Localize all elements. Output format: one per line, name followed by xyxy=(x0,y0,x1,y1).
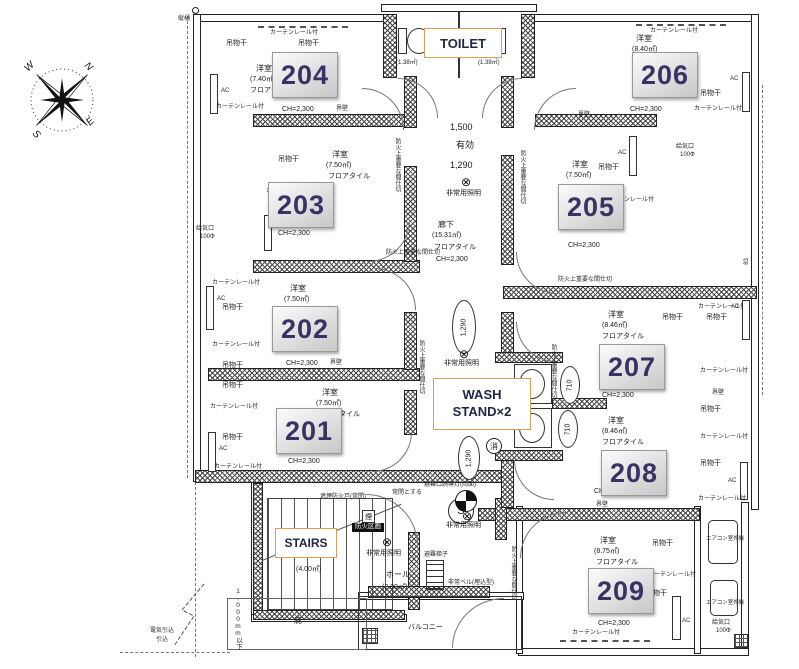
ac-label: AC xyxy=(731,304,739,311)
room-208-type: 洋室 xyxy=(608,416,624,425)
toilet-tank-left xyxy=(398,28,407,54)
curtain-rail-label: カーテンレール付 xyxy=(216,104,264,111)
vertical-drain-icon xyxy=(192,7,199,14)
room-202-ch: CH=2,300 xyxy=(286,360,318,368)
corridor-ch: CH=2,300 xyxy=(436,256,468,264)
ac-label: AC xyxy=(618,150,626,157)
emergency-light-label: 非常用照明 xyxy=(444,360,479,368)
emergency-light-label: 非常用照明 xyxy=(446,522,481,530)
hanging-label: 吊物干 xyxy=(298,40,319,48)
dim-oval-710b: 710 xyxy=(558,410,578,448)
washstand-wall-stub xyxy=(552,398,607,409)
toilet-area-left: (1.38㎡) xyxy=(396,60,418,67)
party-wall xyxy=(253,260,420,273)
wall-209-right xyxy=(694,506,701,654)
wall-bottom-209 xyxy=(518,648,749,656)
hanging-label: 吊物干 xyxy=(700,90,721,98)
smoke-door-label: 遮煙防火戸(常閉) xyxy=(320,494,366,501)
room-203-finish: フロアタイル xyxy=(328,173,370,181)
room-205-ch: CH=2,300 xyxy=(568,242,600,250)
room-207-finish: フロアタイル xyxy=(602,333,644,341)
dim-1290: 1,290 xyxy=(450,160,473,170)
emergency-light-icon: ⊗ xyxy=(461,176,471,188)
kaihe-label: 界壁 xyxy=(578,112,590,119)
room-206-type: 洋室 xyxy=(636,34,652,43)
extinguisher-label: 消 xyxy=(490,441,498,452)
room-badge-205: 205 xyxy=(558,184,624,230)
wall-toilet-top xyxy=(381,4,537,12)
corridor-wall xyxy=(501,460,514,508)
fire-partition-label-v: 防火上重要な間仕切 xyxy=(519,150,525,250)
curtain-rail-label: カーテンレール付 xyxy=(212,342,260,349)
room-203-type: 洋室 xyxy=(332,150,348,159)
door-arc-toilet-left xyxy=(398,78,438,118)
room-badge-208: 208 xyxy=(601,450,667,496)
washstand-label-1: WASH xyxy=(463,387,502,404)
dim-83: 83 xyxy=(744,258,751,265)
escape-ladder-icon xyxy=(426,560,444,590)
room-201-type: 洋室 xyxy=(322,388,338,397)
ac-unit xyxy=(740,462,748,500)
supply-port-label: 給気口 xyxy=(676,144,694,151)
room-208-finish: フロアタイル xyxy=(602,439,644,447)
hanging-label: 吊物干 xyxy=(662,314,683,322)
fire-compartment-tag: 防火区画 xyxy=(352,523,384,532)
compass-e: E xyxy=(84,115,97,128)
hanging-label: 吊物干 xyxy=(598,164,619,172)
hanging-label: 吊物干 xyxy=(222,382,243,390)
lead-in-zigzag xyxy=(168,582,208,652)
dim-1000mm: 1,000mm以下 xyxy=(234,588,241,660)
wall-right-bay xyxy=(741,502,749,656)
washstand-label-2: STAND×2 xyxy=(453,404,512,421)
supply-port-label: 給気口 xyxy=(712,620,730,627)
toilet-label-box: TOILET xyxy=(424,28,502,58)
room-207-area: (8.46㎡) xyxy=(602,322,627,330)
curtain-rail-label: カーテンレール付 xyxy=(214,464,262,471)
hanging-label: 吊物干 xyxy=(222,304,243,312)
stairs-label: STAIRS xyxy=(284,536,327,550)
room-badge-204: 204 xyxy=(272,52,338,98)
lead-in-label: 引込 xyxy=(156,637,168,644)
door-arc-202 xyxy=(374,268,416,310)
hanging-label: 吊物干 xyxy=(226,40,247,48)
wall-top-right xyxy=(533,14,759,22)
dim-1290-v: 1,290 xyxy=(461,318,468,336)
room-badge-206: 206 xyxy=(632,52,698,98)
dim-1290-v: 1,290 xyxy=(466,449,473,467)
supply-dia-label: 100Φ xyxy=(716,628,731,635)
room-209-ch: CH=2,300 xyxy=(598,620,630,628)
hanging-label: 吊物干 xyxy=(706,314,727,322)
room-207-type: 洋室 xyxy=(608,310,624,319)
curtain-rail xyxy=(258,26,348,28)
fire-partition-label-v: 防火上重要な間仕切 xyxy=(418,340,424,430)
dim-oval-710a: 710 xyxy=(560,366,580,404)
room-206-ch: CH=2,300 xyxy=(630,106,662,114)
room-207-ch: CH=2,300 xyxy=(602,392,634,400)
curtain-rail-label: カーテンレール付 xyxy=(270,30,318,37)
curtain-rail-label: カーテンレール付 xyxy=(700,368,748,375)
ac-unit xyxy=(672,596,681,640)
outdoor-unit-2 xyxy=(710,580,738,616)
eave-line-right xyxy=(762,85,763,395)
door-arc-208 xyxy=(514,460,554,500)
fire-partition-label-v: 防火上重要な間仕切 xyxy=(394,138,400,238)
room-202-type: 洋室 xyxy=(290,284,306,293)
kaihe-label: 界壁 xyxy=(712,390,724,397)
room-202-area: (7.50㎡) xyxy=(284,296,309,304)
door-arc-toilet-right xyxy=(482,78,522,118)
room-badge-202: 202 xyxy=(272,306,338,352)
canopy-label: 庇 xyxy=(294,616,302,625)
outdoor-unit-label: エアコン室外機 xyxy=(706,600,744,606)
dim-oval-1290: 1,290 xyxy=(452,300,476,354)
hanging-label: 吊物干 xyxy=(652,540,673,548)
emergency-light-icon: ⊗ xyxy=(462,510,472,522)
floor-plan: N W S E xyxy=(0,0,799,669)
curtain-rail-label: カーテンレール付 xyxy=(698,496,746,503)
exit-light-label: 避難口誘導灯(両面) xyxy=(424,482,476,489)
corridor-wall xyxy=(501,312,514,354)
wall-top-left xyxy=(193,14,387,22)
curtain-rail-label: カーテンレール付 xyxy=(700,434,748,441)
ac-unit xyxy=(742,300,750,340)
room-208-area: (8.46㎡) xyxy=(602,428,627,436)
emergency-light-label: 非常用照明 xyxy=(446,190,481,198)
corridor-wall xyxy=(404,312,417,370)
property-line-bottom xyxy=(120,652,230,653)
room-badge-203: 203 xyxy=(268,182,334,228)
corridor-finish: フロアタイル xyxy=(434,244,476,252)
hall-area: (2.00㎡) xyxy=(382,584,407,592)
room-205-area: (7.50㎡) xyxy=(566,172,591,180)
washstand-label-box: WASH STAND×2 xyxy=(433,378,531,430)
supply-dia-label: 100Φ xyxy=(200,234,215,241)
ac-label: AC xyxy=(217,296,225,303)
smoke-label: 煙 xyxy=(365,512,372,522)
corridor-name: 廊下 xyxy=(438,220,454,229)
dim-1500: 1,500 xyxy=(450,122,473,132)
hanging-label: 吊物干 xyxy=(278,156,299,164)
smoke-mark-box: 煙 xyxy=(362,510,375,523)
dim-710: 710 xyxy=(567,379,574,391)
curtain-rail-label: カーテンレール付 xyxy=(648,572,696,579)
compass-s: S xyxy=(30,128,43,141)
keep-closed-label: 常閉とする xyxy=(392,490,422,497)
party-wall xyxy=(478,508,700,521)
emergency-light-icon: ⊗ xyxy=(459,348,469,360)
curtain-rail-label: カーテンレール付 xyxy=(650,28,698,35)
hall-name: ホール xyxy=(386,570,410,579)
outdoor-unit-label: エアコン室外機 xyxy=(706,536,744,542)
ac-label: AC xyxy=(219,446,227,453)
fire-partition-label: 防火上重要な間仕切 xyxy=(386,250,440,257)
dim-oval-1290b: 1,290 xyxy=(458,436,480,480)
curtain-rail-label: カーテンレール付 xyxy=(694,106,742,113)
emergency-light-icon: ⊗ xyxy=(382,536,392,548)
wall-left xyxy=(193,14,201,482)
ac-label: AC xyxy=(221,88,229,95)
balcony-label: バルコニー xyxy=(408,624,443,632)
room-203-area: (7.50㎡) xyxy=(326,162,351,170)
wall-right xyxy=(751,14,759,510)
room-badge-201: 201 xyxy=(276,408,342,454)
toilet-wall-right xyxy=(521,14,535,78)
room-204-ch: CH=2,300 xyxy=(282,106,314,114)
curtain-rail-label: カーテンレール付 xyxy=(210,404,258,411)
room-badge-207: 207 xyxy=(599,344,665,390)
hanging-label: 吊物干 xyxy=(700,406,721,414)
eave-line-left xyxy=(187,16,188,478)
balcony-outline xyxy=(358,596,522,650)
room-209-type: 洋室 xyxy=(600,536,616,545)
escape-ladder-label: 避難梯子 xyxy=(424,552,448,559)
ac-label: AC xyxy=(682,618,690,625)
toilet-label: TOILET xyxy=(440,36,486,51)
supply-port-label: 給気口 xyxy=(196,226,214,233)
corridor-wall xyxy=(404,166,417,262)
room-203-ch: CH=2,300 xyxy=(278,230,310,238)
ac-unit xyxy=(742,72,750,112)
room-205-type: 洋室 xyxy=(572,160,588,169)
corridor-wall xyxy=(404,390,417,435)
kaihe-label: 界壁 xyxy=(330,360,342,367)
curtain-rail-label: カーテンレール付 xyxy=(572,630,620,637)
curtain-rail xyxy=(636,24,726,26)
compass-w: W xyxy=(22,59,38,75)
room-201-ch: CH=2,300 xyxy=(288,458,320,466)
toilet-area-right: (1.38㎡) xyxy=(478,60,500,67)
door-arc-201 xyxy=(372,432,412,472)
room-209-finish: フロアタイル xyxy=(596,559,638,567)
ac-unit xyxy=(629,136,637,176)
room-201-area: (7.50㎡) xyxy=(316,400,341,408)
compass-n: N xyxy=(82,60,95,73)
room-209-area: (8.75㎡) xyxy=(594,548,619,556)
emergency-light-label: 非常用照明 xyxy=(366,550,401,558)
corridor-wall xyxy=(501,155,514,265)
kaihe-label: 界壁 xyxy=(336,106,348,113)
room-204-type: 洋室 xyxy=(256,64,272,73)
hanging-label: 吊物干 xyxy=(222,434,243,442)
supply-dia-label: 100Φ xyxy=(680,152,695,159)
compass-rose: N W S E xyxy=(18,52,106,144)
dim-710: 710 xyxy=(565,423,572,435)
emergency-bell-label: 非常ベル(埋込型) xyxy=(448,580,494,587)
curtain-rail-label: カーテンレール付 xyxy=(212,280,260,287)
ac-label: AC xyxy=(730,76,738,83)
kaihe-label: 界壁 xyxy=(596,502,608,509)
door-arc-206 xyxy=(534,88,576,130)
ac-label: AC xyxy=(728,478,736,485)
hanging-label: 吊物干 xyxy=(222,362,243,370)
vertical-drain-label: 縦樋 xyxy=(178,16,190,23)
curtain-rail xyxy=(560,640,650,642)
hanging-label: 吊物干 xyxy=(700,460,721,468)
supply-grate xyxy=(734,634,748,648)
fire-partition-label: 防火上重要な間仕切 xyxy=(558,277,612,284)
room-badge-209: 209 xyxy=(588,568,654,614)
dim-eff: 有効 xyxy=(456,140,474,150)
toilet-wall-left xyxy=(383,14,397,78)
corridor-area: (15.31㎡) xyxy=(432,232,461,240)
ac-unit xyxy=(206,286,214,330)
extinguisher-mark: 消 xyxy=(486,438,502,454)
stairs-area: (4.00㎡) xyxy=(296,566,321,574)
stairs-label-box: STAIRS xyxy=(275,528,337,558)
